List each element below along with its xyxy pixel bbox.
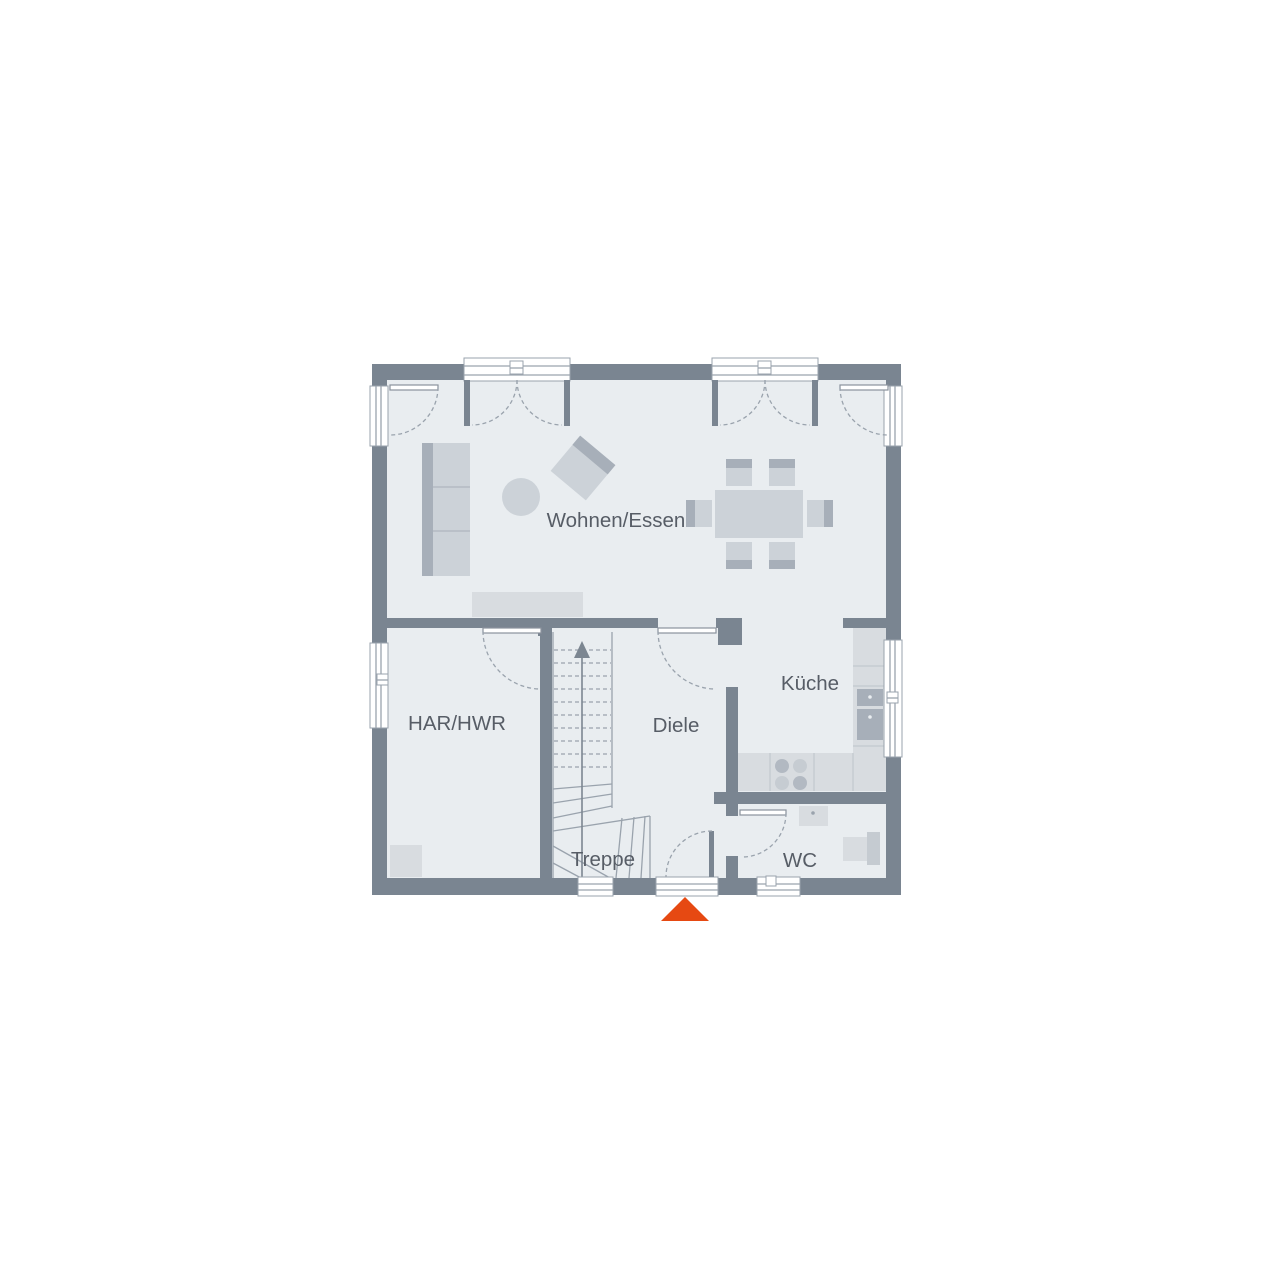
door-jamb (564, 380, 570, 426)
wc-toilet-tank (867, 832, 880, 865)
oven-knob (868, 695, 872, 699)
window-frame (757, 877, 800, 896)
door-frame (884, 386, 902, 446)
room-label-wohnen-essen: Wohnen/Essen (547, 509, 686, 532)
window-har (370, 643, 388, 728)
chair-back (726, 560, 752, 569)
sofa-back (422, 443, 433, 576)
entrance-triangle-icon (661, 897, 709, 921)
cooktop-burner (775, 759, 789, 773)
window-wc (757, 876, 800, 896)
door-jamb (812, 380, 818, 426)
wall-segment (387, 618, 540, 628)
oven-2 (857, 709, 883, 740)
cooktop-burner (793, 776, 807, 790)
wall-north (372, 364, 901, 380)
wall-segment (552, 618, 658, 628)
chair-back (769, 459, 795, 468)
door-jamb (464, 380, 470, 426)
window-frame (578, 877, 613, 896)
room-label-wc: WC (783, 849, 817, 872)
room-label-treppe: Treppe (571, 848, 635, 871)
door-leaf (483, 628, 541, 633)
chair-back (824, 500, 833, 527)
kitchen-counter (738, 753, 886, 791)
window-handle (766, 876, 776, 886)
floor-plan-page: Wohnen/Essen Küche HAR/HWR Diele Treppe … (0, 0, 1280, 1280)
window-kueche (884, 640, 902, 757)
door-leaf (658, 628, 716, 633)
wc-sink-drain (811, 811, 815, 815)
wall-stub (718, 628, 742, 645)
chair-back (686, 500, 695, 527)
door-leaf (840, 385, 888, 390)
coffee-table (502, 478, 540, 516)
door-leaf (709, 831, 714, 877)
door-frame (370, 386, 388, 446)
room-label-kueche: Küche (781, 672, 839, 695)
wall-wc-stub (726, 804, 738, 816)
wall-wc-stub (726, 856, 738, 878)
chair-back (769, 560, 795, 569)
window-treppe (578, 877, 613, 896)
room-label-har-hwr: HAR/HWR (408, 712, 506, 735)
wall-segment (843, 618, 886, 628)
cooktop-burner (775, 776, 789, 790)
wall-kueche-wc (714, 792, 886, 804)
door-leaf (740, 810, 786, 815)
chair-back (726, 459, 752, 468)
wall-diele-kueche (726, 687, 738, 792)
cooktop-burner (793, 759, 807, 773)
door-jamb (712, 380, 718, 426)
wc-toilet (843, 837, 870, 861)
door-leaf (390, 385, 438, 390)
wall-south (372, 878, 901, 895)
sideboard (472, 592, 583, 617)
sofa (433, 443, 470, 576)
door-sill (656, 877, 718, 896)
room-label-diele: Diele (653, 714, 700, 737)
oven-2-knob (868, 715, 872, 719)
wall-segment (716, 618, 742, 628)
dining-table (715, 490, 803, 538)
floor-plan: Wohnen/Essen Küche HAR/HWR Diele Treppe … (0, 0, 1280, 1280)
wc-sink (799, 806, 828, 826)
wall-stair-left (540, 636, 552, 878)
hwr-appliance (390, 845, 422, 877)
